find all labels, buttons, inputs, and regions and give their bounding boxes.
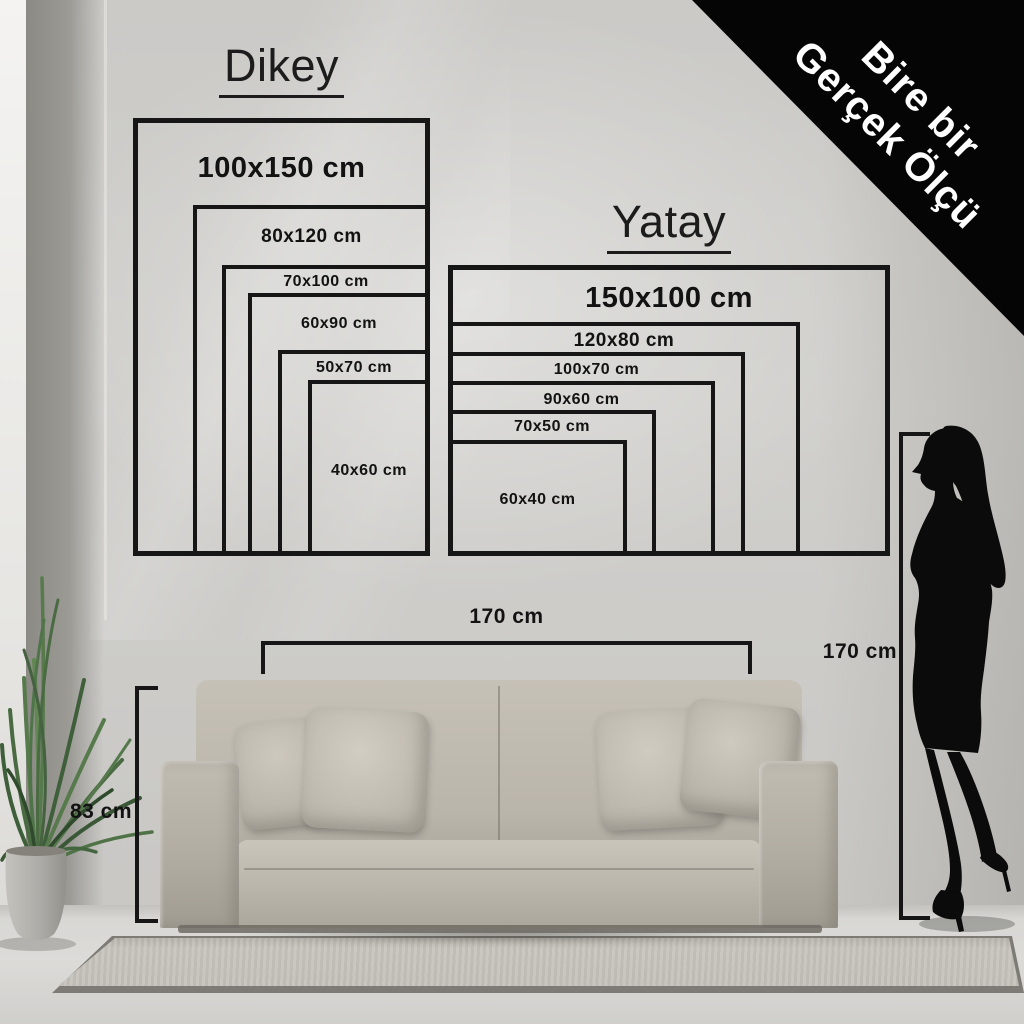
plant-leaves bbox=[2, 578, 152, 868]
dikey-title-text: Dikey bbox=[219, 40, 344, 98]
size-label-50x70: 50x70 cm bbox=[282, 359, 426, 377]
sofa-width-tick-right bbox=[748, 641, 752, 674]
person-height-label: 170 cm bbox=[810, 640, 897, 664]
sofa-height-tick-top bbox=[135, 686, 158, 690]
sofa-height-tick-bottom bbox=[135, 919, 158, 923]
plant-pot-rim bbox=[6, 846, 66, 856]
size-label-100x150: 100x150 cm bbox=[138, 152, 425, 185]
woman-shadow bbox=[919, 916, 1015, 932]
sofa-arm-right bbox=[759, 761, 838, 928]
size-label-40x60: 40x60 cm bbox=[312, 462, 426, 480]
wall-panel-edge bbox=[104, 0, 107, 620]
size-box-40x60: 40x60 cm bbox=[308, 380, 430, 556]
sofa-base bbox=[178, 925, 822, 933]
size-label-60x40: 60x40 cm bbox=[452, 491, 623, 509]
size-label-70x50: 70x50 cm bbox=[452, 418, 652, 436]
person-height-tick-bottom bbox=[899, 916, 930, 920]
sofa-pillow bbox=[301, 707, 429, 833]
person-height-line bbox=[899, 432, 903, 920]
woman-back-shoe bbox=[980, 848, 1008, 872]
woman-front-shoe bbox=[932, 890, 964, 919]
yatay-title-text: Yatay bbox=[607, 196, 731, 254]
sofa-arm-left bbox=[160, 761, 239, 928]
dikey-title: Dikey bbox=[133, 40, 430, 98]
size-box-60x40: 60x40 cm bbox=[448, 440, 627, 556]
size-label-120x80: 120x80 cm bbox=[452, 330, 796, 352]
sofa-width-tick-left bbox=[261, 641, 265, 674]
sofa-seat-seam bbox=[244, 868, 754, 870]
size-label-70x100: 70x100 cm bbox=[226, 273, 426, 291]
size-guide-poster: Dikey 100x150 cm 80x120 cm 70x100 cm 60x… bbox=[0, 0, 1024, 1024]
size-label-80x120: 80x120 cm bbox=[197, 226, 426, 248]
woman-silhouette bbox=[885, 420, 1024, 935]
size-label-100x70: 100x70 cm bbox=[452, 361, 741, 379]
potted-plant bbox=[0, 560, 170, 960]
sofa-backrest-seam bbox=[498, 686, 500, 856]
woman-back-heel bbox=[1002, 870, 1011, 892]
sofa-height-line bbox=[135, 686, 139, 923]
yatay-title: Yatay bbox=[448, 196, 890, 254]
size-label-90x60: 90x60 cm bbox=[452, 391, 711, 409]
size-label-60x90: 60x90 cm bbox=[252, 315, 426, 333]
plant-pot bbox=[6, 848, 67, 941]
person-height-tick-top bbox=[899, 432, 930, 436]
sofa-seat-cushion bbox=[236, 840, 762, 928]
sofa-height-label: 83 cm bbox=[46, 800, 132, 824]
sofa-width-label: 170 cm bbox=[261, 605, 752, 629]
size-label-150x100: 150x100 cm bbox=[453, 282, 885, 315]
sofa-width-line bbox=[261, 641, 752, 645]
